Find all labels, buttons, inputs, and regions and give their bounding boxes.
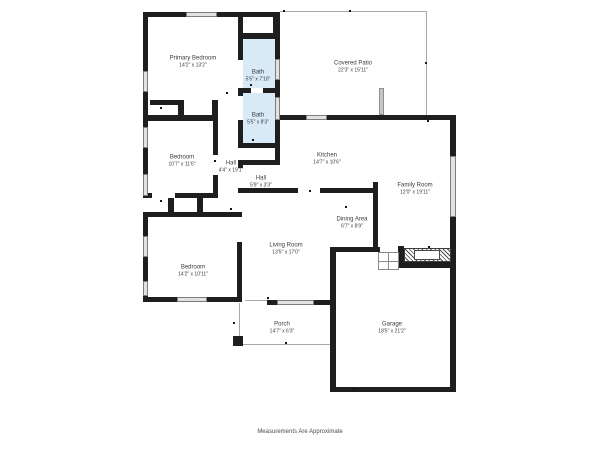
- wall: [267, 300, 277, 305]
- footer-note: Measurements Are Approximate: [0, 429, 600, 435]
- room-label-family-room: Family Room 12'0" x 19'11": [397, 183, 432, 196]
- window: [275, 97, 280, 120]
- room-label-hall-long: Hall 4'4" x 19'1": [219, 161, 244, 174]
- door-tick: [345, 206, 347, 208]
- room-dims: 18'5" x 21'2": [378, 329, 405, 335]
- door-tick: [352, 388, 354, 390]
- porch-outline: [245, 300, 267, 301]
- room-label-bedroom-middle: Bedroom 10'7" x 11'6": [168, 155, 195, 168]
- door-tick: [425, 62, 427, 64]
- wall: [314, 300, 330, 305]
- wall: [243, 88, 251, 93]
- door-tick: [214, 160, 216, 162]
- room-name: Dining Area: [336, 217, 367, 224]
- room-dims: 10'7" x 11'6": [168, 162, 195, 168]
- room-dims: 4'4" x 19'1": [219, 168, 244, 174]
- door-tick: [230, 208, 232, 210]
- door-tick: [252, 139, 254, 141]
- door-tick: [267, 297, 269, 299]
- room-label-dining-area: Dining Area 6'7" x 8'9": [336, 217, 367, 230]
- wall: [197, 198, 203, 212]
- wall: [330, 247, 336, 392]
- window: [450, 156, 456, 217]
- room-dims: 14'7" x 10'6": [313, 160, 340, 166]
- window: [275, 59, 280, 80]
- room-label-living-room: Living Room 13'5" x 17'0": [269, 243, 302, 256]
- room-name: Garage: [378, 322, 405, 329]
- room-name: Family Room: [397, 183, 432, 190]
- door-tick: [349, 10, 351, 12]
- wall: [143, 212, 242, 217]
- room-label-bath-upper: Bath 5'5" x 7'10": [246, 70, 271, 83]
- column-post: [379, 88, 384, 115]
- room-dims: 14'2" x 10'11": [178, 272, 208, 278]
- window: [186, 12, 217, 17]
- room-label-porch: Porch 14'7" x 6'3": [270, 322, 295, 335]
- wall: [330, 387, 456, 392]
- wall: [330, 247, 380, 252]
- room-label-bedroom-lower: Bedroom 14'2" x 10'11": [178, 265, 208, 278]
- wall: [238, 143, 280, 148]
- patio-outline: [280, 11, 427, 12]
- room-name: Living Room: [269, 243, 302, 250]
- room-name: Primary Bedroom: [170, 56, 217, 63]
- wall: [143, 115, 218, 121]
- stairs-landing: [414, 250, 440, 260]
- room-name: Hall: [250, 176, 272, 183]
- room-dims: 5'5" x 8'3": [247, 120, 269, 126]
- room-name: Bedroom: [178, 265, 208, 272]
- wall: [168, 198, 174, 212]
- room-name: Bedroom: [168, 155, 195, 162]
- wall: [243, 160, 275, 165]
- window: [143, 127, 148, 148]
- wall: [238, 33, 280, 39]
- window: [143, 71, 148, 92]
- window: [277, 300, 314, 305]
- room-dims: 6'7" x 8'9": [336, 224, 367, 230]
- wall: [320, 188, 377, 193]
- room-name: Covered Patio: [334, 61, 372, 68]
- door-tick: [285, 342, 287, 344]
- room-dims: 12'0" x 19'11": [397, 190, 432, 196]
- wall: [373, 182, 378, 252]
- room-dims: 5'5" x 7'10": [246, 77, 271, 83]
- room-label-covered-patio: Covered Patio 22'3" x 15'11": [334, 61, 372, 74]
- wall: [398, 262, 456, 268]
- room-name: Hall: [219, 161, 244, 168]
- door-tick: [233, 322, 235, 324]
- room-dims: 13'5" x 17'0": [269, 250, 302, 256]
- window: [306, 115, 327, 120]
- room-name: Kitchen: [313, 153, 340, 160]
- room-label-hall-short: Hall 5'9" x 3'3": [250, 176, 272, 189]
- door-tick: [309, 190, 311, 192]
- room-name: Bath: [246, 70, 271, 77]
- room-label-kitchen: Kitchen 14'7" x 10'6": [313, 153, 340, 166]
- room-label-garage: Garage 18'5" x 21'2": [378, 322, 405, 335]
- door-tick: [160, 200, 162, 202]
- wall: [233, 336, 243, 346]
- utility-grid-line: [378, 261, 399, 262]
- door-tick: [250, 84, 252, 86]
- wall: [213, 121, 218, 155]
- window: [143, 174, 148, 196]
- window: [143, 236, 148, 257]
- door-tick: [428, 246, 430, 248]
- room-name: Porch: [270, 322, 295, 329]
- room-dims: 14'2" x 13'2": [170, 63, 217, 69]
- wall: [263, 88, 275, 93]
- door-tick: [226, 92, 228, 94]
- door-tick: [427, 120, 429, 122]
- room-name: Bath: [247, 113, 269, 120]
- room-dims: 22'3" x 15'11": [334, 68, 372, 74]
- room-dims: 5'9" x 3'3": [250, 183, 272, 189]
- room-label-bath-lower: Bath 5'5" x 8'3": [247, 113, 269, 126]
- window: [143, 281, 148, 296]
- door-tick: [283, 10, 285, 12]
- porch-outline: [239, 344, 331, 345]
- room-label-primary-bedroom: Primary Bedroom 14'2" x 13'2": [170, 56, 217, 69]
- wall: [150, 100, 178, 105]
- door-tick: [160, 107, 162, 109]
- window: [177, 297, 207, 302]
- floor-plan: Primary Bedroom 14'2" x 13'2" Bath 5'5" …: [0, 0, 600, 450]
- room-dims: 14'7" x 6'3": [270, 329, 295, 335]
- patio-outline: [426, 11, 427, 117]
- wall: [237, 242, 242, 302]
- wall: [243, 188, 298, 193]
